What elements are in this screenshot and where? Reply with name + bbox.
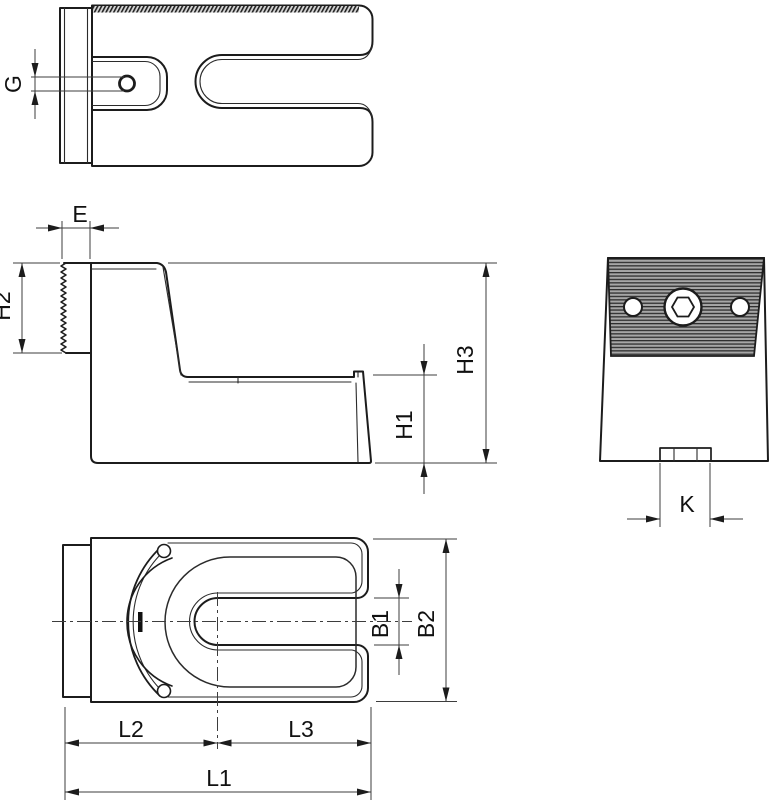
front-serration-zigzag bbox=[61, 263, 66, 353]
dim-label-g: G bbox=[0, 75, 26, 93]
bottom-view-body-outline bbox=[91, 538, 368, 702]
dim-label-b2: B2 bbox=[413, 610, 439, 638]
top-view: G bbox=[0, 6, 373, 167]
dim-label-l2: L2 bbox=[118, 716, 144, 742]
dim-label-k: K bbox=[679, 491, 695, 517]
side-bottom-notch bbox=[660, 448, 711, 461]
bottom-view: B1 B2 L2 L3 L1 bbox=[52, 538, 457, 800]
dim-h2: H2 bbox=[0, 263, 62, 353]
drawing-page: G E H2 bbox=[0, 0, 770, 800]
dim-label-h1: H1 bbox=[391, 410, 417, 439]
dim-label-l3: L3 bbox=[288, 716, 314, 742]
front-view-serrated-block-edges bbox=[64, 263, 91, 353]
side-left-hole bbox=[624, 298, 642, 316]
top-view-hole bbox=[120, 76, 135, 91]
side-hex-socket bbox=[672, 298, 694, 317]
dim-l1: L1 bbox=[65, 765, 371, 796]
dim-label-h2: H2 bbox=[0, 291, 15, 320]
side-view: K bbox=[600, 258, 768, 527]
dim-e: E bbox=[36, 201, 119, 259]
dim-k: K bbox=[627, 463, 743, 527]
top-serration-band bbox=[93, 6, 359, 13]
technical-drawing-canvas: G E H2 bbox=[0, 0, 770, 800]
dim-h1: H1 bbox=[373, 344, 437, 494]
dim-label-l1: L1 bbox=[206, 765, 232, 791]
dim-label-e: E bbox=[72, 201, 87, 227]
front-view-body-outline bbox=[91, 263, 371, 463]
side-right-hole bbox=[731, 298, 749, 316]
dim-label-b1: B1 bbox=[367, 610, 393, 638]
front-view: E H2 H3 H1 bbox=[0, 201, 497, 494]
dim-label-h3: H3 bbox=[452, 345, 478, 374]
